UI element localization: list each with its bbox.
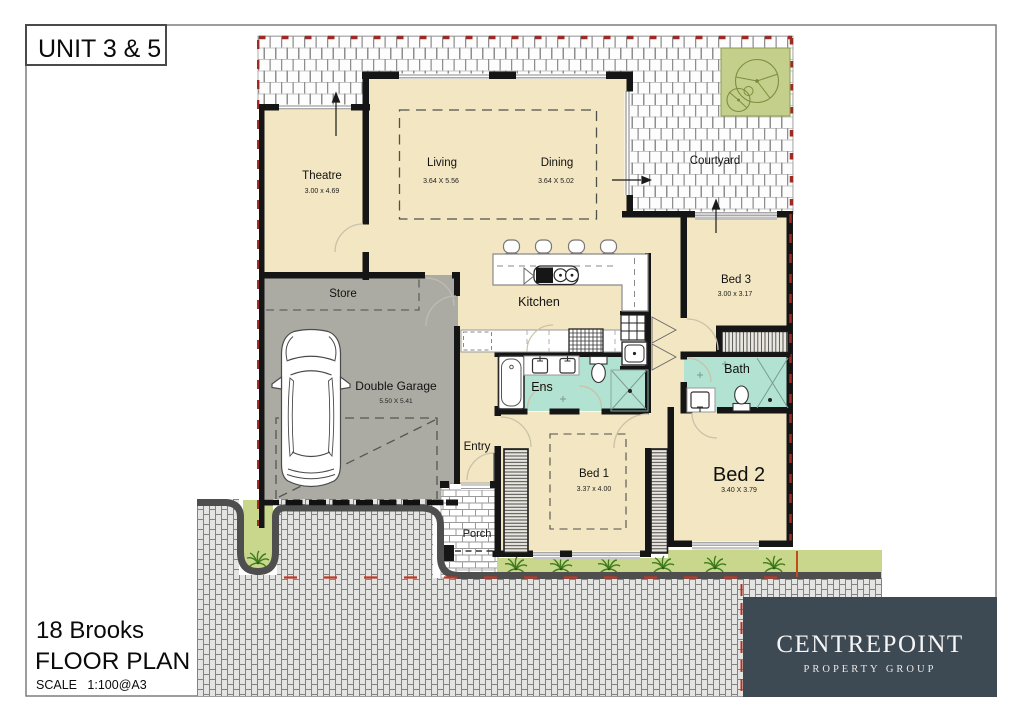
svg-text:3.64 X 5.56: 3.64 X 5.56 <box>423 178 459 185</box>
svg-text:5.50 X 5.41: 5.50 X 5.41 <box>379 398 413 405</box>
svg-text:Double Garage: Double Garage <box>355 379 437 393</box>
svg-text:3.37 x 4.00: 3.37 x 4.00 <box>577 486 612 493</box>
svg-text:SCALE 1:100@A3: SCALE 1:100@A3 <box>36 678 147 692</box>
svg-text:Bed 2: Bed 2 <box>713 464 765 486</box>
svg-text:3.00 x 4.69: 3.00 x 4.69 <box>305 188 340 195</box>
svg-text:Living: Living <box>427 157 457 169</box>
svg-text:3.00 x 3.17: 3.00 x 3.17 <box>718 291 753 298</box>
svg-text:3.64 X 5.02: 3.64 X 5.02 <box>538 178 574 185</box>
svg-text:UNIT 3 & 5: UNIT 3 & 5 <box>38 35 161 63</box>
svg-text:Bed 3: Bed 3 <box>721 274 751 286</box>
svg-text:Ens: Ens <box>531 380 553 394</box>
svg-text:PROPERTY GROUP: PROPERTY GROUP <box>804 664 937 675</box>
svg-text:CENTREPOINT: CENTREPOINT <box>776 631 963 658</box>
svg-text:Theatre: Theatre <box>302 170 342 182</box>
svg-text:18 Brooks: 18 Brooks <box>36 617 144 644</box>
svg-text:3.40 X 3.79: 3.40 X 3.79 <box>721 487 757 494</box>
svg-text:Entry: Entry <box>464 441 491 453</box>
svg-text:Bath: Bath <box>724 362 750 376</box>
svg-text:Store: Store <box>329 288 357 300</box>
svg-text:Dining: Dining <box>541 157 574 169</box>
svg-text:Porch: Porch <box>463 528 492 540</box>
svg-text:Courtyard: Courtyard <box>690 155 741 167</box>
svg-text:Kitchen: Kitchen <box>518 295 560 309</box>
svg-text:Bed 1: Bed 1 <box>579 468 609 480</box>
svg-text:FLOOR PLAN: FLOOR PLAN <box>35 648 190 675</box>
